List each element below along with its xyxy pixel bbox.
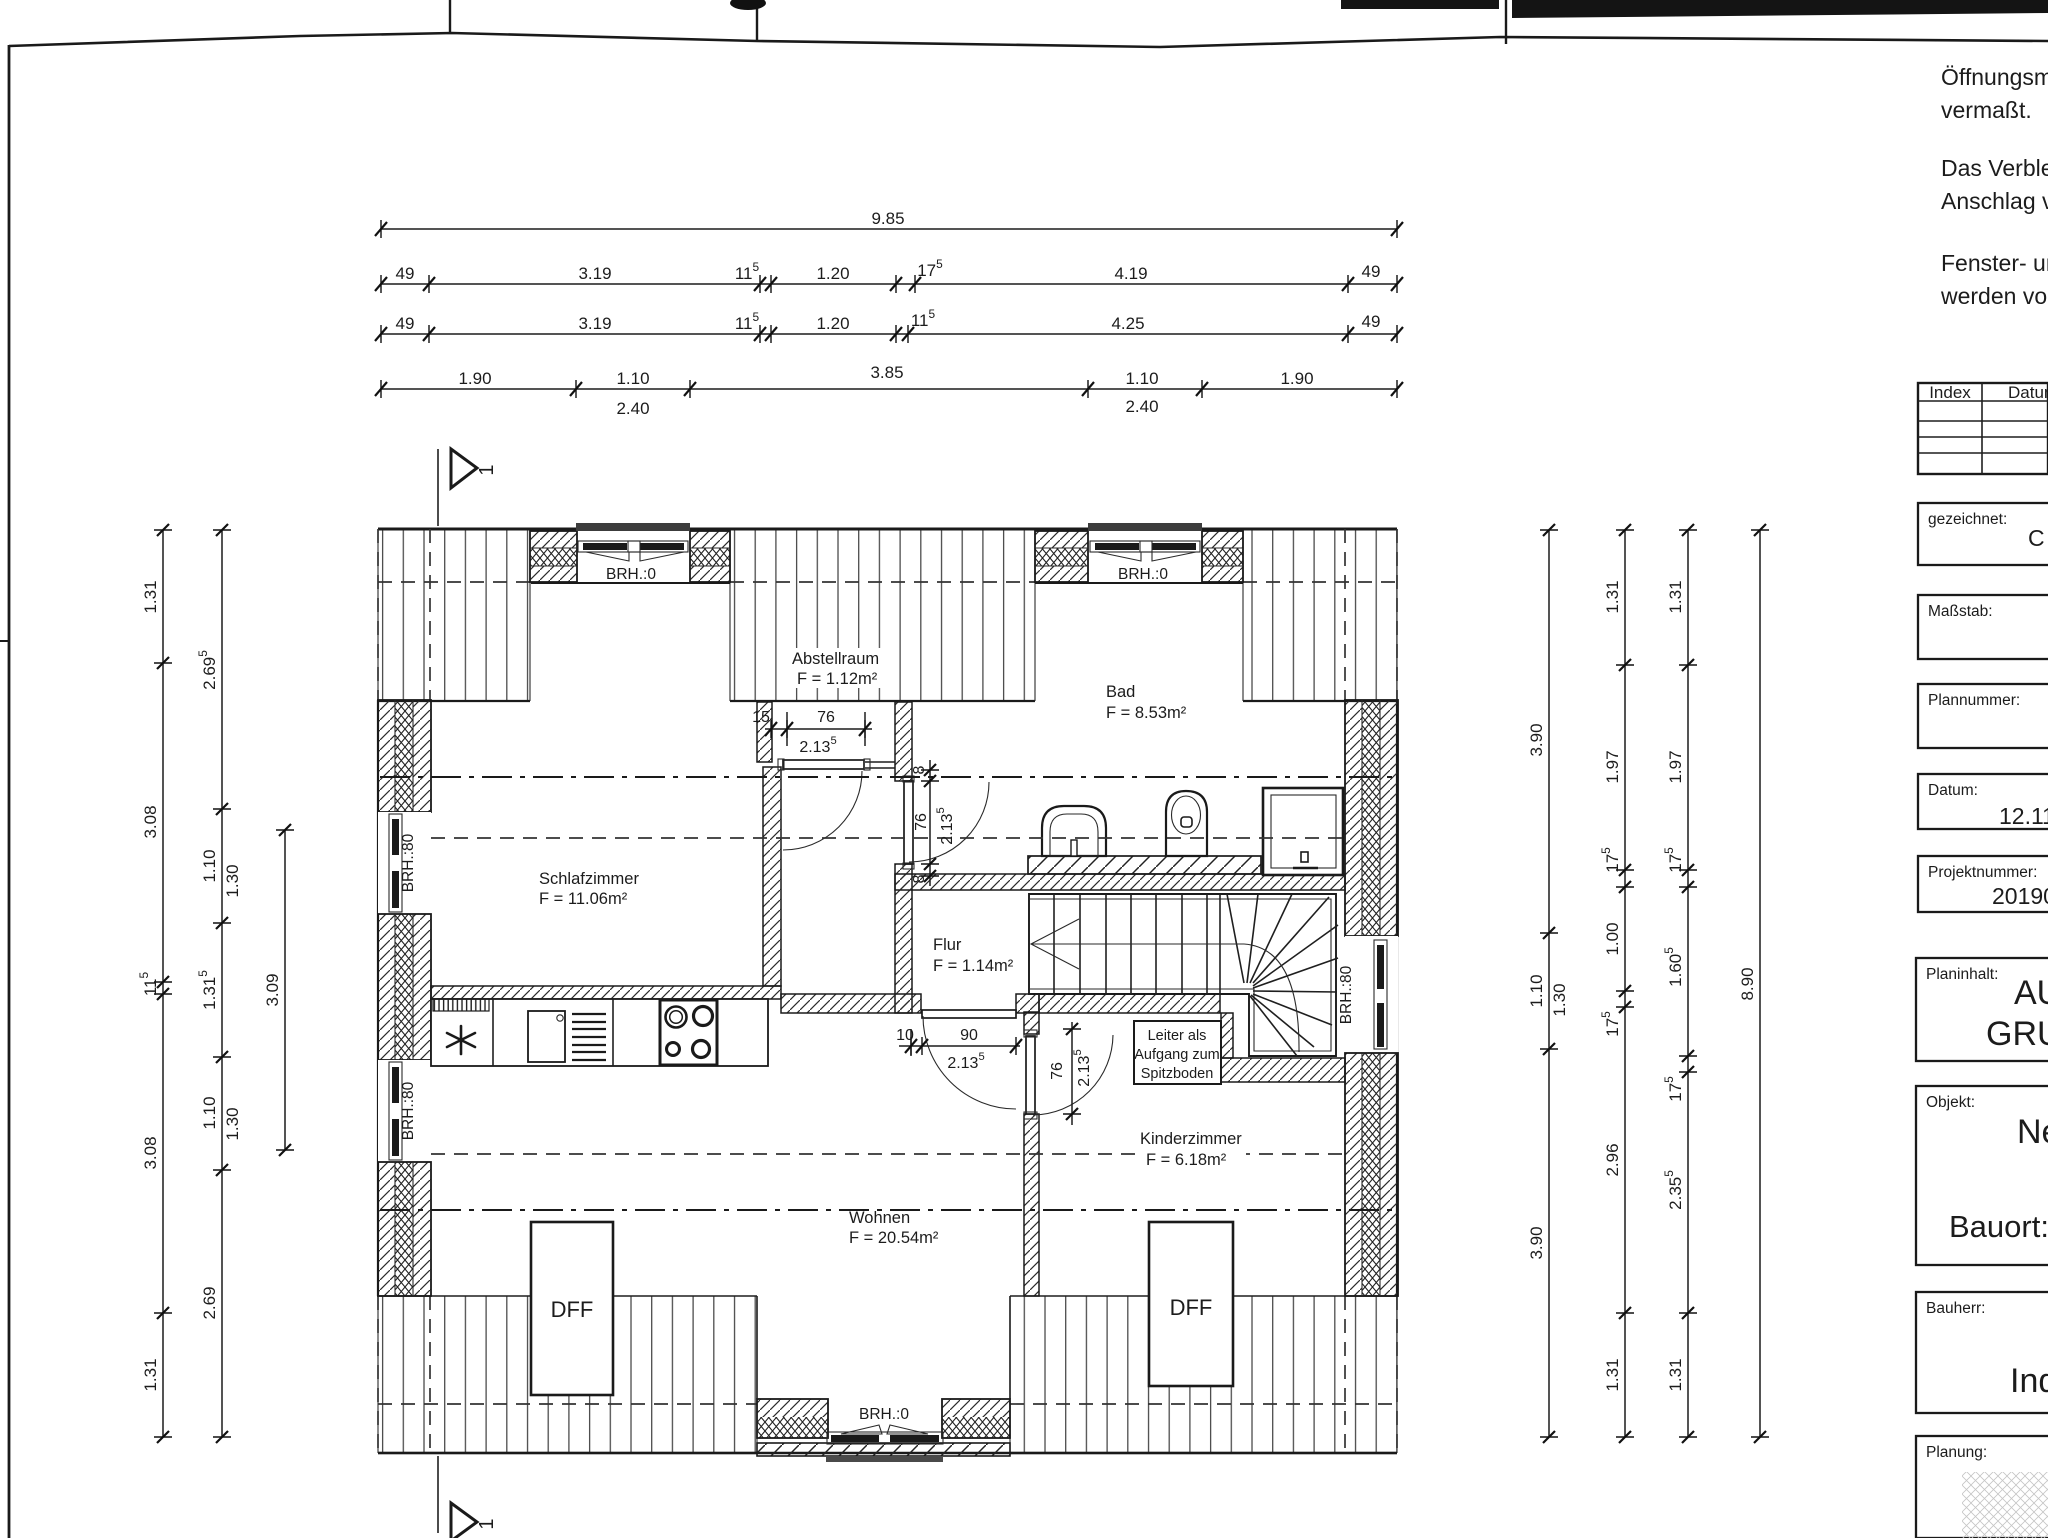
svg-text:9.85: 9.85 [871,209,904,228]
svg-text:1.31: 1.31 [141,1358,160,1391]
svg-text:Leiter als: Leiter als [1148,1028,1207,1044]
svg-text:Kinderzimmer: Kinderzimmer [1140,1130,1242,1148]
svg-text:1.00: 1.00 [1603,922,1622,955]
svg-text:F = 1.14m²: F = 1.14m² [933,957,1014,975]
svg-text:Anschlag von außen: Anschlag von außen [1941,188,2048,214]
svg-text:Datum: Datum [2008,383,2048,402]
svg-text:Fenster- und Türen w: Fenster- und Türen w [1941,250,2048,276]
svg-text:DFF: DFF [1170,1295,1213,1320]
svg-text:Planinhalt:: Planinhalt: [1926,966,1998,983]
svg-text:20190: 20190 [1992,883,2048,909]
svg-text:3.85: 3.85 [870,363,903,382]
svg-text:49: 49 [396,264,415,283]
svg-text:DFF: DFF [551,1297,594,1322]
svg-text:1.31: 1.31 [1666,1358,1685,1391]
svg-text:BRH.:0: BRH.:0 [1118,566,1168,583]
svg-text:F = 11.06m²: F = 11.06m² [539,890,628,908]
svg-text:Projektnummer:: Projektnummer: [1928,864,2037,881]
svg-text:C: C [2028,525,2045,551]
svg-text:Bauort: A: Bauort: A [1949,1209,2048,1244]
svg-text:1.31: 1.31 [1603,580,1622,613]
svg-text:1.30: 1.30 [223,864,242,897]
svg-text:3.90: 3.90 [1527,723,1546,756]
svg-text:90: 90 [960,1027,978,1044]
svg-text:werden von außen m: werden von außen m [1940,283,2048,309]
svg-text:Bad: Bad [1106,683,1135,701]
svg-text:3.19: 3.19 [578,264,611,283]
svg-text:vermaßt.: vermaßt. [1941,97,2032,123]
svg-text:4.19: 4.19 [1114,264,1147,283]
svg-text:1.90: 1.90 [458,369,491,388]
svg-text:1.31: 1.31 [141,580,160,613]
svg-text:3.19: 3.19 [578,314,611,333]
svg-text:gezeichnet:: gezeichnet: [1928,511,2007,528]
svg-text:76: 76 [913,813,930,831]
svg-text:Plannummer:: Plannummer: [1928,692,2020,709]
svg-text:1.10: 1.10 [1125,369,1158,388]
svg-text:Das Verblendmauerw: Das Verblendmauerw [1941,155,2048,181]
svg-text:Wohnen: Wohnen [849,1209,910,1227]
svg-text:76: 76 [817,709,835,726]
svg-text:15: 15 [752,709,770,726]
svg-text:8: 8 [911,765,928,774]
svg-text:Ind: Ind [2010,1362,2048,1400]
svg-text:1: 1 [476,464,498,475]
svg-text:Abstellraum: Abstellraum [792,650,879,668]
svg-text:3.09: 3.09 [263,973,282,1006]
svg-text:Aufgang zum: Aufgang zum [1134,1047,1219,1063]
svg-text:8.90: 8.90 [1738,967,1757,1000]
svg-text:3.08: 3.08 [141,1136,160,1169]
svg-text:Planung:: Planung: [1926,1444,1987,1461]
svg-text:1.10: 1.10 [616,369,649,388]
svg-text:Maßstab:: Maßstab: [1928,603,1993,620]
svg-text:1.97: 1.97 [1666,750,1685,783]
svg-text:F = 8.53m²: F = 8.53m² [1106,704,1187,722]
svg-text:F = 20.54m²: F = 20.54m² [849,1229,939,1247]
svg-text:Öffnungsmaße sind: Öffnungsmaße sind [1941,64,2048,90]
svg-text:2.96: 2.96 [1603,1143,1622,1176]
svg-text:GRU: GRU [1986,1015,2048,1053]
svg-text:49: 49 [1362,312,1381,331]
svg-text:1.20: 1.20 [816,314,849,333]
svg-text:Datum:: Datum: [1928,782,1978,799]
svg-text:F = 6.18m²: F = 6.18m² [1146,1151,1227,1169]
svg-text:1.30: 1.30 [1550,983,1569,1016]
svg-text:1.10: 1.10 [200,849,219,882]
svg-text:BRH.:0: BRH.:0 [606,566,656,583]
svg-text:1.20: 1.20 [816,264,849,283]
svg-text:2.69: 2.69 [200,1286,219,1319]
svg-text:8: 8 [911,874,928,883]
svg-text:76: 76 [1049,1062,1066,1080]
svg-text:1.10: 1.10 [1527,974,1546,1007]
svg-text:Flur: Flur [933,936,962,954]
svg-text:Schlafzimmer: Schlafzimmer [539,870,639,888]
svg-text:BRH.:80: BRH.:80 [400,833,417,892]
svg-text:1.90: 1.90 [1280,369,1313,388]
svg-text:49: 49 [396,314,415,333]
svg-text:Bauherr:: Bauherr: [1926,1300,1985,1317]
svg-text:F = 1.12m²: F = 1.12m² [797,670,878,688]
svg-text:1.97: 1.97 [1603,750,1622,783]
svg-text:49: 49 [1362,262,1381,281]
svg-text:10: 10 [896,1027,914,1044]
svg-text:2.40: 2.40 [1125,397,1158,416]
svg-text:Spitzboden: Spitzboden [1141,1066,1214,1082]
svg-text:BRH.:0: BRH.:0 [859,1406,909,1423]
svg-text:1.31: 1.31 [1666,580,1685,613]
svg-text:1: 1 [476,1518,498,1529]
svg-text:1.10: 1.10 [200,1096,219,1129]
svg-text:2.40: 2.40 [616,399,649,418]
svg-text:4.25: 4.25 [1111,314,1144,333]
svg-text:AU: AU [2014,974,2048,1012]
svg-text:12.11: 12.11 [1999,803,2048,829]
svg-text:3.90: 3.90 [1527,1226,1546,1259]
svg-text:Ne: Ne [2017,1113,2048,1151]
svg-text:3.08: 3.08 [141,805,160,838]
svg-text:1.30: 1.30 [223,1107,242,1140]
svg-text:1.31: 1.31 [1603,1358,1622,1391]
svg-text:Objekt:: Objekt: [1926,1094,1975,1111]
svg-text:BRH.:80: BRH.:80 [1338,965,1355,1024]
svg-text:Index: Index [1929,383,1971,402]
svg-text:BRH.:80: BRH.:80 [400,1081,417,1140]
